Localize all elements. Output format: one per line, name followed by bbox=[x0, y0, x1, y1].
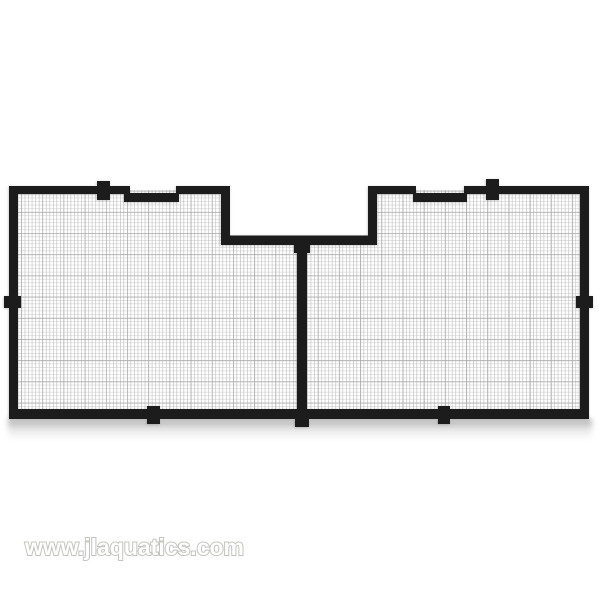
svg-text:www.jlaquatics.com: www.jlaquatics.com bbox=[24, 534, 244, 560]
